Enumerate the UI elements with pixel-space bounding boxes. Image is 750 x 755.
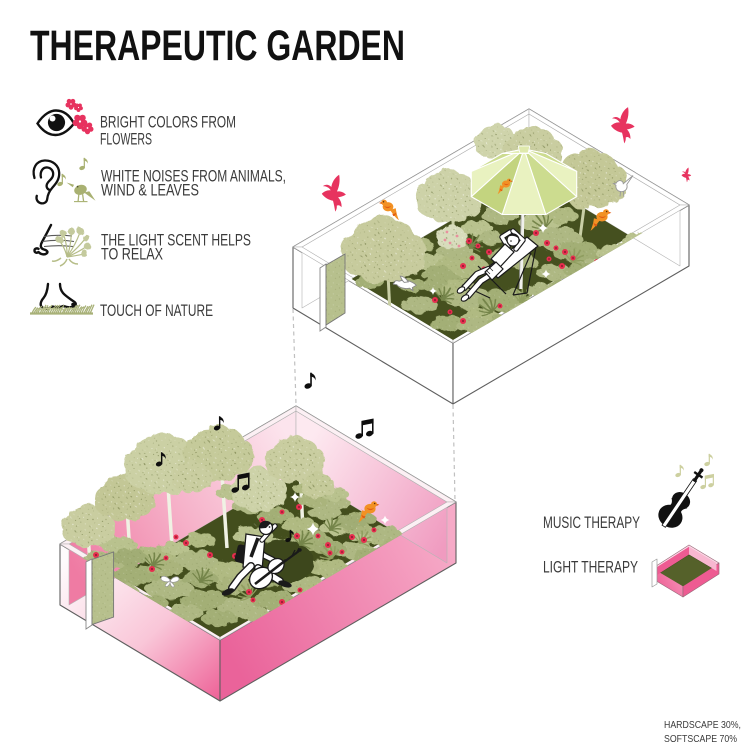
svg-text:FLOWERS: FLOWERS: [100, 131, 152, 149]
svg-text:TOUCH OF NATURE: TOUCH OF NATURE: [100, 302, 213, 320]
svg-text:BRIGHT COLORS FROM: BRIGHT COLORS FROM: [100, 114, 236, 132]
svg-text:HARDSCAPE 30%,: HARDSCAPE 30%,: [664, 719, 741, 731]
svg-text:THERAPEUTIC GARDEN: THERAPEUTIC GARDEN: [30, 23, 405, 70]
svg-text:TO RELAX: TO RELAX: [101, 246, 163, 264]
svg-text:LIGHT THERAPY: LIGHT THERAPY: [543, 559, 638, 577]
svg-text:MUSIC THERAPY: MUSIC THERAPY: [543, 514, 640, 532]
svg-text:SOFTSCAPE 70%: SOFTSCAPE 70%: [664, 733, 737, 745]
svg-text:WIND & LEAVES: WIND & LEAVES: [101, 182, 199, 200]
